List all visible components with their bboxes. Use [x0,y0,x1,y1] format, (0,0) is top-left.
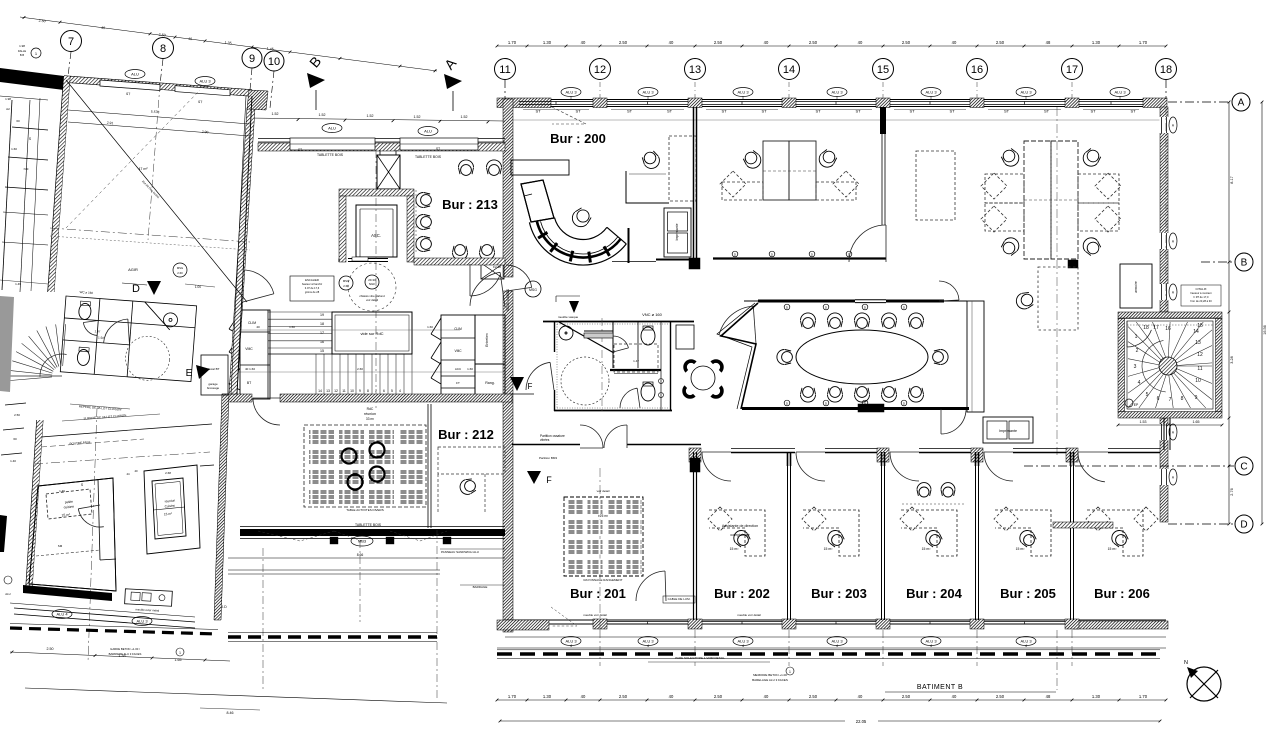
svg-text:17: 17 [320,331,324,335]
svg-text:Bur : 205: Bur : 205 [1000,586,1056,601]
svg-text:2: 2 [1136,348,1139,354]
svg-text:ALU 3: ALU 3 [565,639,577,644]
svg-text:F2.38: F2.38 [493,265,501,269]
svg-text:Bur : 200: Bur : 200 [550,131,606,146]
svg-text:2.50: 2.50 [714,40,723,45]
svg-text:40: 40 [669,694,674,699]
svg-text:10: 10 [268,56,280,68]
svg-text:voir détail: voir détail [366,298,378,302]
svg-text:ST: ST [126,92,131,96]
svg-text:A2: A2 [6,107,10,111]
svg-text:40: 40 [188,37,192,41]
svg-text:2.76: 2.76 [1230,488,1234,495]
svg-text:comptabilité: comptabilité [730,533,749,537]
svg-text:réunion: réunion [364,412,376,416]
svg-text:VMC: VMC [454,349,462,353]
svg-text:2.50: 2.50 [996,694,1005,699]
svg-text:15: 15 [320,349,324,353]
svg-text:Bur : 204: Bur : 204 [906,586,962,601]
svg-text:ALU 3: ALU 3 [642,639,654,644]
svg-text:BARELAGE ALU 3 FACES: BARELAGE ALU 3 FACES [752,678,788,682]
svg-text:ALU 3: ALU 3 [737,639,749,644]
svg-text:1.30: 1.30 [543,694,552,699]
svg-text:ALU 3: ALU 3 [565,90,577,95]
svg-text:ST: ST [949,109,955,114]
svg-text:Partition BM3: Partition BM3 [539,456,557,460]
svg-text:15 m²: 15 m² [1108,547,1118,551]
svg-text:14: 14 [318,389,322,393]
svg-text:2.91: 2.91 [107,121,114,125]
svg-text:14: 14 [1193,329,1199,335]
svg-text:2.60: 2.60 [343,284,349,288]
svg-text:1.53: 1.53 [1140,420,1147,424]
svg-text:ALU 3: ALU 3 [831,639,843,644]
svg-text:1.98: 1.98 [5,97,11,101]
svg-text:2.60: 2.60 [177,271,183,275]
svg-text:MSG: MSG [343,279,349,283]
svg-text:40 1.60: 40 1.60 [245,367,255,371]
svg-text:ST: ST [1090,109,1096,114]
svg-text:40: 40 [101,26,105,30]
svg-text:15 m²: 15 m² [922,547,932,551]
svg-text:40: 40 [952,694,957,699]
svg-text:1.47: 1.47 [633,359,639,363]
svg-text:CLIM: CLIM [454,327,462,331]
svg-text:2.90: 2.90 [202,130,209,134]
svg-text:MSG: MSG [529,288,537,292]
svg-text:Imprimante: Imprimante [999,429,1017,433]
svg-text:33 m²: 33 m² [366,417,374,421]
svg-text:15 m²: 15 m² [824,547,834,551]
svg-text:vide sur RdC: vide sur RdC [360,331,383,336]
svg-text:ALU 3: ALU 3 [925,90,937,95]
svg-text:ALU 3: ALU 3 [136,619,148,624]
svg-text:12: 12 [1197,352,1203,358]
svg-text:ALU: ALU [424,129,432,134]
svg-text:ALU 3: ALU 3 [1020,639,1032,644]
svg-text:13: 13 [1195,340,1201,346]
svg-text:2.50: 2.50 [902,40,911,45]
svg-text:1.60: 1.60 [427,325,433,329]
svg-text:1.60: 1.60 [467,367,473,371]
svg-text:Bur : 212: Bur : 212 [438,427,494,442]
svg-text:NGF: NGF [369,282,376,286]
svg-text:Entretien: Entretien [485,333,489,347]
svg-text:ALU: ALU [328,126,336,131]
svg-text:40: 40 [669,40,674,45]
svg-text:Bur : 201: Bur : 201 [570,586,626,601]
svg-text:Bur : 206: Bur : 206 [1094,586,1150,601]
svg-text:ALU 3: ALU 3 [642,90,654,95]
svg-text:9: 9 [359,389,361,393]
svg-text:E: E [186,368,193,379]
svg-text:D: D [132,283,140,295]
svg-text:CLIM: CLIM [248,321,256,325]
svg-text:4: 4 [930,644,932,648]
svg-text:VNC ø 160: VNC ø 160 [642,312,663,317]
svg-text:17: 17 [1066,64,1078,76]
svg-text:1.65: 1.65 [1193,420,1200,424]
svg-text:13: 13 [326,389,330,393]
svg-text:11: 11 [499,64,510,76]
svg-text:RAYONNAGE RANGEMENT: RAYONNAGE RANGEMENT [584,578,623,582]
svg-text:2.50: 2.50 [47,647,54,651]
svg-text:AGIR: AGIR [128,267,138,272]
svg-text:13: 13 [689,64,701,76]
svg-text:8: 8 [367,389,369,393]
svg-text:DALLE: DALLE [18,49,26,53]
svg-text:voir detail: voir detail [597,489,610,493]
svg-text:ST: ST [1130,109,1136,114]
svg-text:1.70: 1.70 [1139,694,1148,699]
svg-text:Bur : 202: Bur : 202 [714,586,770,601]
svg-text:ALU 3: ALU 3 [1020,90,1032,95]
svg-text:TABLETTE BOIS: TABLETTE BOIS [415,155,442,159]
svg-text:ALU 3: ALU 3 [737,90,749,95]
svg-text:EP: EP [1134,403,1139,407]
svg-text:1.52: 1.52 [272,112,279,116]
svg-text:1.52: 1.52 [319,113,326,117]
svg-text:ALU 3: ALU 3 [925,639,937,644]
svg-text:2.60: 2.60 [357,367,363,371]
svg-text:ST: ST [198,100,203,104]
svg-text:RdC: RdC [367,407,374,411]
svg-text:22.05: 22.05 [856,719,867,724]
svg-text:h RT de 17,0: h RT de 17,0 [1194,295,1209,299]
svg-text:Assistante de direction: Assistante de direction [722,524,758,528]
svg-text:ALU 3: ALU 3 [199,79,211,84]
svg-text:MB3: MB3 [358,539,367,544]
svg-text:h'on de 23,28 à 30: h'on de 23,28 à 30 [1190,299,1212,303]
svg-text:10: 10 [350,389,354,393]
svg-text:C: C [1240,462,1247,473]
svg-text:16: 16 [320,340,324,344]
svg-text:1.49: 1.49 [15,282,21,286]
svg-text:48: 48 [1046,694,1051,699]
svg-text:ALU 4: ALU 4 [56,612,68,617]
svg-text:ACC: ACC [455,367,462,371]
svg-text:16: 16 [1165,326,1171,332]
svg-text:1.70: 1.70 [508,694,517,699]
svg-text:BATIMENT B: BATIMENT B [917,684,963,691]
svg-text:8: 8 [1181,396,1184,402]
svg-text:1.70: 1.70 [508,40,517,45]
svg-text:2.50: 2.50 [38,19,45,24]
svg-text:ST: ST [815,109,821,114]
svg-text:3: 3 [1134,364,1137,370]
svg-text:2.50: 2.50 [714,694,723,699]
svg-text:12: 12 [334,389,338,393]
svg-text:18: 18 [1160,64,1172,76]
svg-text:17: 17 [1153,325,1159,331]
svg-text:PARE SOLEIL TYPE 1 VOIR DETAIL: PARE SOLEIL TYPE 1 VOIR DETAIL [675,656,725,660]
svg-text:15 m²: 15 m² [1016,547,1026,551]
svg-text:18: 18 [320,322,324,326]
svg-text:2.50: 2.50 [809,40,818,45]
svg-text:ST: ST [535,109,541,114]
svg-text:11: 11 [342,389,346,393]
svg-text:60: 60 [13,437,17,441]
svg-text:1.47: 1.47 [94,329,100,333]
svg-text:VMC: VMC [245,347,253,351]
svg-text:Imprimante: Imprimante [675,223,679,240]
svg-text:1: 1 [179,651,181,655]
svg-text:4: 4 [1138,380,1141,386]
svg-text:ESCALIER: ESCALIER [305,278,319,282]
svg-text:1.98: 1.98 [19,44,25,48]
svg-text:1.30: 1.30 [1092,40,1101,45]
svg-text:18: 18 [1143,325,1149,331]
svg-text:Rang.: Rang. [485,381,495,385]
svg-text:ST: ST [298,148,302,152]
svg-text:6: 6 [383,389,385,393]
svg-text:hauteur à montant: hauteur à montant [1190,291,1211,295]
svg-text:D: D [1240,520,1247,531]
svg-text:ST: ST [855,109,861,114]
svg-text:ALU: ALU [131,72,139,77]
svg-text:1.35: 1.35 [119,654,126,658]
svg-text:1: 1 [1135,334,1138,340]
svg-text:60: 60 [16,119,20,123]
svg-text:12: 12 [594,64,606,76]
svg-text:hauteur à franchir: hauteur à franchir [302,282,322,286]
svg-text:2.68: 2.68 [165,471,171,475]
svg-text:1.30: 1.30 [543,40,552,45]
svg-text:3.07 de 17,6: 3.07 de 17,6 [305,286,320,290]
svg-text:NM: NM [24,167,29,171]
svg-text:ALU 3: ALU 3 [831,90,843,95]
svg-text:ALU: ALU [5,592,10,596]
svg-text:CABLE DE LUM.: CABLE DE LUM. [668,597,691,601]
svg-text:1.40: 1.40 [10,459,16,463]
svg-text:A: A [1238,98,1245,109]
svg-text:1.60: 1.60 [289,325,295,329]
svg-text:FT: FT [456,381,460,385]
svg-text:MSG: MSG [177,266,183,270]
svg-text:B: B [1241,258,1248,269]
svg-text:4: 4 [570,644,572,648]
svg-text:armoire: armoire [1134,281,1138,293]
svg-text:15 m²: 15 m² [164,512,173,517]
svg-text:1.52: 1.52 [414,115,421,119]
svg-text:ST: ST [1044,109,1050,114]
svg-text:BT: BT [247,381,251,385]
svg-text:2.50: 2.50 [809,694,818,699]
svg-text:ST: ST [627,109,633,114]
svg-text:1.60: 1.60 [11,147,17,151]
svg-text:9: 9 [249,53,255,65]
svg-text:5.578: 5.578 [151,110,160,115]
svg-text:1.50: 1.50 [98,336,104,340]
svg-text:7: 7 [1169,397,1172,403]
svg-text:47 m²: 47 m² [138,167,148,171]
svg-text:1.35: 1.35 [224,41,231,46]
svg-text:4: 4 [647,644,649,648]
svg-text:SM: SM [58,544,63,548]
svg-text:4: 4 [836,644,838,648]
svg-text:40: 40 [256,325,260,329]
svg-text:44: 44 [126,472,130,476]
svg-text:15 m²: 15 m² [730,547,740,551]
svg-text:1: 1 [789,670,791,674]
svg-text:15: 15 [1197,323,1203,329]
svg-text:TABLETTE BOIS: TABLETTE BOIS [317,153,344,157]
svg-text:TABLETTE BOIS: TABLETTE BOIS [355,523,382,527]
svg-text:1.52: 1.52 [367,114,374,118]
svg-text:40: 40 [581,40,586,45]
svg-text:brossage: brossage [207,386,220,390]
svg-text:ST: ST [1004,109,1010,114]
svg-text:2.50: 2.50 [902,694,911,699]
svg-text:8.17: 8.17 [1230,176,1234,183]
svg-text:9: 9 [1195,395,1198,401]
svg-text:J.D: J.D [221,605,227,609]
svg-text:3.28: 3.28 [1230,356,1234,363]
svg-text:B.B: B.B [20,53,24,57]
svg-text:MEMOIRE BETON +1.00: MEMOIRE BETON +1.00 [753,673,787,677]
svg-text:2.50: 2.50 [996,40,1005,45]
svg-text:8: 8 [160,43,166,55]
svg-text:±25 m²: ±25 m² [598,514,608,518]
svg-text:girons de 28: girons de 28 [305,290,320,294]
svg-text:1.49: 1.49 [59,489,65,493]
svg-text:Bur : 203: Bur : 203 [811,586,867,601]
svg-text:PANNEAU SANDWICH ALU: PANNEAU SANDWICH ALU [441,550,479,554]
svg-text:2.50: 2.50 [14,413,20,417]
svg-text:meuble voir détail: meuble voir détail [737,613,761,617]
svg-text:40: 40 [858,694,863,699]
svg-text:7: 7 [375,389,377,393]
svg-text:ST: ST [909,109,915,114]
svg-text:5: 5 [1146,392,1149,398]
svg-text:ST: ST [436,147,440,151]
svg-text:1.30: 1.30 [1092,694,1101,699]
svg-text:ST: ST [721,109,727,114]
svg-text:ST: ST [761,109,767,114]
svg-text:19: 19 [320,313,324,317]
svg-text:16: 16 [971,64,983,76]
svg-text:1.70: 1.70 [1139,40,1148,45]
svg-text:1.52: 1.52 [461,115,468,119]
svg-text:CITALIX: CITALIX [1195,287,1206,291]
svg-text:meuble voir détail: meuble voir détail [583,613,607,617]
svg-text:10: 10 [1195,378,1201,384]
svg-text:4: 4 [399,389,401,393]
svg-text:40: 40 [764,694,769,699]
svg-text:40: 40 [952,40,957,45]
svg-text:40: 40 [764,40,769,45]
svg-text:4: 4 [742,644,744,648]
svg-text:48: 48 [1046,40,1051,45]
svg-text:8.46: 8.46 [227,711,234,715]
svg-text:2.50: 2.50 [619,694,628,699]
svg-text:40: 40 [134,469,138,473]
svg-text:F: F [546,475,552,485]
svg-text:TABLE ACTIVITES DIVERS: TABLE ACTIVITES DIVERS [346,508,383,512]
svg-text:14: 14 [783,64,795,76]
svg-text:ST: ST [667,109,673,114]
svg-text:vitrées: vitrées [540,438,550,442]
svg-text:meuble vasque: meuble vasque [558,315,579,319]
svg-text:local BT: local BT [209,367,220,371]
svg-text:15: 15 [877,64,889,76]
svg-text:N: N [1184,660,1188,666]
svg-text:40: 40 [858,40,863,45]
svg-text:Bur : 213: Bur : 213 [442,197,498,212]
svg-text:4: 4 [1025,644,1027,648]
svg-text:7: 7 [68,36,74,48]
svg-text:40: 40 [581,694,586,699]
svg-text:1.65: 1.65 [175,658,182,662]
svg-text:SEUIL GAINES: SEUIL GAINES [506,289,510,311]
svg-text:2.50: 2.50 [619,40,628,45]
svg-text:5: 5 [391,389,393,393]
svg-text:ALU 3: ALU 3 [1114,90,1126,95]
svg-text:F: F [528,382,533,391]
svg-text:6: 6 [1157,396,1160,402]
svg-text:11: 11 [1197,366,1202,372]
svg-text:2.50: 2.50 [158,33,165,38]
svg-text:GARDE BETON +1.00 /: GARDE BETON +1.00 / [110,647,140,651]
svg-text:BARDAGE: BARDAGE [473,585,488,589]
svg-text:16.56: 16.56 [1263,325,1267,335]
svg-text:ST: ST [575,109,581,114]
